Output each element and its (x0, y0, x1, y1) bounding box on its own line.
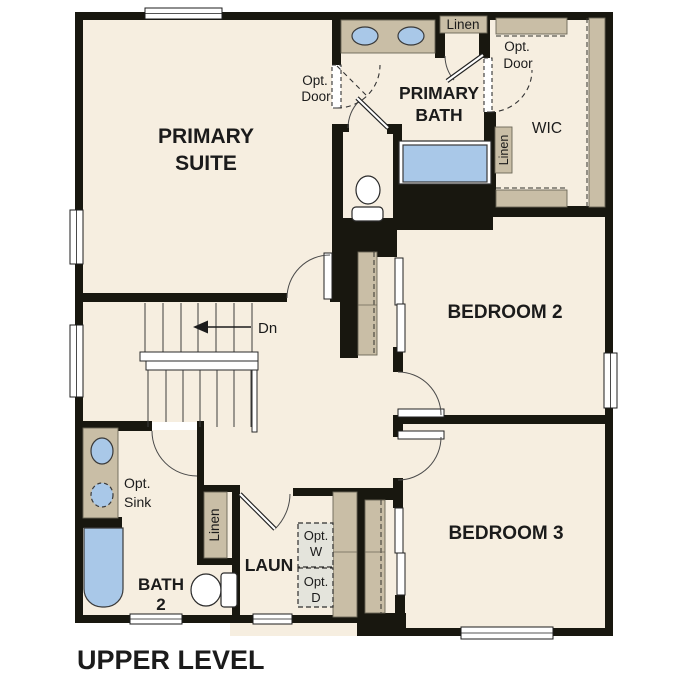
stair-rail-upper (140, 352, 258, 361)
suite-door-leaf (324, 253, 332, 299)
primary-tub (403, 145, 487, 182)
label-opt-door-wic-line2: Door (503, 56, 533, 71)
wic-shelf-top (496, 18, 567, 34)
wall-exterior-left (75, 12, 83, 623)
wall-closet2-left (340, 252, 358, 358)
label-opt-washer-line1: Opt. (304, 528, 329, 543)
bath2-sink (91, 438, 113, 464)
bedroom2-door-leaf (398, 409, 444, 417)
opt-door-wic-opening (484, 58, 492, 112)
label-opt-door-suite-line2: Door (301, 89, 331, 104)
bath2-toilet-tank (221, 573, 237, 607)
primary-toilet-tank (352, 207, 383, 221)
primary-vanity-sink-left (352, 27, 378, 45)
wall-linen2-top (197, 485, 232, 492)
laundry-counter (333, 492, 357, 617)
wall-suite-bottom (75, 293, 287, 302)
bath2-tub (84, 528, 123, 607)
label-stairs-down: Dn (258, 320, 277, 337)
label-opt-washer-line2: W (310, 544, 323, 559)
label-primary-suite-line2: SUITE (175, 152, 237, 175)
label-opt-door-wic-line1: Opt. (504, 39, 530, 54)
stair-stringer (252, 370, 257, 432)
label-linen-wic: Linen (497, 135, 511, 166)
label-linen-primary-bath: Linen (446, 17, 479, 32)
label-linen-bath2: Linen (207, 508, 222, 541)
floor-plan-page: PRIMARY SUITE PRIMARY BATH BEDROOM 2 BED… (0, 0, 687, 687)
wall-niche-stub-right (387, 124, 402, 134)
primary-toilet-bowl (356, 176, 380, 204)
wall-bath2-vanity-tub-divider (75, 517, 122, 528)
label-laundry: LAUN (245, 555, 294, 575)
closet3-shelf (365, 500, 385, 613)
wall-suite-right-upper (332, 18, 341, 65)
label-opt-sink-line1: Opt. (124, 475, 150, 491)
wall-exterior-right (605, 12, 613, 636)
wic-shelf-bottom (496, 190, 567, 207)
wall-niche-stub-left (333, 124, 349, 132)
label-bedroom2: BEDROOM 2 (447, 302, 562, 323)
label-wic: WIC (532, 120, 562, 137)
wall-linen2-left (197, 431, 204, 565)
wall-suite-right-mid (332, 124, 343, 222)
wall-laundry-closet3-divider (357, 488, 365, 623)
label-primary-bath-line1: PRIMARY (399, 83, 479, 103)
label-opt-dryer-line2: D (311, 590, 320, 605)
label-bedroom3: BEDROOM 3 (448, 523, 563, 544)
primary-vanity-sink-right (398, 27, 424, 45)
label-primary-bath-line2: BATH (415, 105, 462, 125)
label-primary-suite-line1: PRIMARY (158, 125, 254, 148)
label-opt-door-suite-line1: Opt. (302, 73, 328, 88)
closet2-slider-panel2 (397, 304, 405, 352)
label-bath2-line2: 2 (156, 595, 165, 614)
stair-rail-lower (146, 361, 258, 370)
wall-wic-bottom (490, 206, 613, 217)
opt-door-suite-opening (332, 65, 341, 108)
floor-plan: PRIMARY SUITE PRIMARY BATH BEDROOM 2 BED… (0, 0, 687, 687)
wall-linen2-bottom (197, 558, 232, 565)
closet2-slider-panel1 (395, 258, 403, 305)
wall-exterior-bottom-left (75, 615, 365, 623)
wall-closet3-bottom (395, 595, 405, 628)
label-opt-sink-line2: Sink (124, 494, 152, 510)
bedroom3-door-leaf (398, 431, 444, 439)
wall-band-below-tub (393, 182, 493, 230)
bath2-door-opening (152, 422, 197, 430)
wic-shelf-right (589, 18, 605, 207)
closet3-slider-panel2 (397, 553, 405, 595)
label-opt-dryer-line1: Opt. (304, 574, 329, 589)
closet3-slider-panel1 (395, 508, 403, 553)
bath2-opt-sink (91, 483, 113, 507)
plan-title: UPPER LEVEL (77, 645, 265, 675)
label-bath2-line1: BATH (138, 575, 184, 594)
wall-mass-center (338, 218, 397, 257)
bath2-toilet-bowl (191, 574, 221, 606)
